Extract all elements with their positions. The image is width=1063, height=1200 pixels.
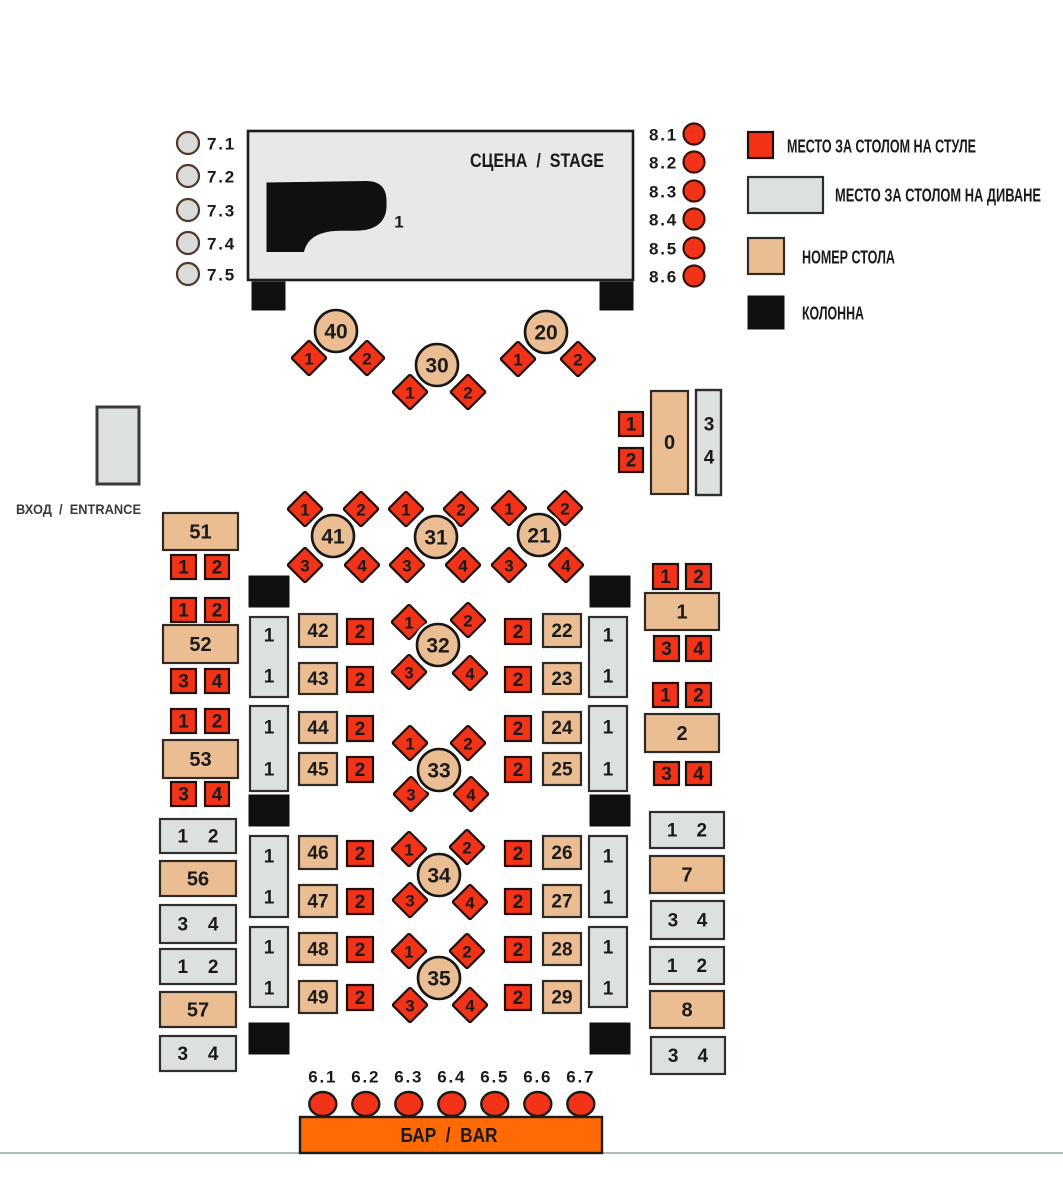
svg-text:2: 2 bbox=[208, 957, 219, 978]
svg-text:22: 22 bbox=[551, 621, 572, 642]
svg-text:1: 1 bbox=[405, 384, 414, 403]
svg-text:56: 56 bbox=[187, 869, 209, 891]
svg-text:1: 1 bbox=[603, 888, 614, 909]
svg-text:1: 1 bbox=[626, 415, 637, 436]
svg-text:1: 1 bbox=[603, 718, 614, 739]
svg-text:1: 1 bbox=[603, 847, 614, 868]
svg-text:2: 2 bbox=[513, 670, 524, 691]
svg-text:7.1: 7.1 bbox=[207, 135, 236, 154]
svg-text:3: 3 bbox=[178, 915, 189, 936]
svg-text:3: 3 bbox=[402, 557, 411, 576]
svg-text:7: 7 bbox=[681, 865, 692, 887]
svg-text:3: 3 bbox=[406, 786, 415, 805]
svg-text:8.4: 8.4 bbox=[649, 211, 678, 230]
svg-text:4: 4 bbox=[458, 557, 468, 576]
svg-text:1: 1 bbox=[264, 938, 275, 959]
svg-text:2: 2 bbox=[463, 384, 472, 403]
svg-text:1: 1 bbox=[394, 213, 403, 232]
svg-text:1: 1 bbox=[401, 501, 410, 520]
svg-text:МЕСТО ЗА СТОЛОМ НА СТУЛЕ: МЕСТО ЗА СТОЛОМ НА СТУЛЕ bbox=[787, 136, 976, 157]
svg-text:3: 3 bbox=[661, 764, 672, 785]
svg-text:3: 3 bbox=[178, 672, 189, 693]
svg-text:2: 2 bbox=[355, 670, 366, 691]
svg-text:42: 42 bbox=[307, 621, 328, 642]
svg-text:6.1: 6.1 bbox=[308, 1068, 337, 1087]
svg-text:7.2: 7.2 bbox=[207, 168, 236, 187]
svg-text:34: 34 bbox=[427, 865, 451, 888]
svg-text:48: 48 bbox=[307, 940, 328, 961]
svg-text:1: 1 bbox=[178, 601, 189, 622]
svg-text:1: 1 bbox=[264, 847, 275, 868]
svg-text:4: 4 bbox=[465, 894, 475, 913]
svg-text:45: 45 bbox=[307, 760, 329, 781]
svg-text:1: 1 bbox=[264, 888, 275, 909]
svg-text:7.4: 7.4 bbox=[207, 235, 236, 254]
svg-text:3: 3 bbox=[704, 415, 715, 436]
svg-text:31: 31 bbox=[424, 527, 448, 550]
svg-text:1: 1 bbox=[264, 760, 275, 781]
svg-text:2: 2 bbox=[212, 712, 223, 733]
svg-text:4: 4 bbox=[693, 764, 704, 785]
svg-text:29: 29 bbox=[551, 988, 572, 1009]
svg-text:2: 2 bbox=[560, 500, 569, 519]
svg-text:8: 8 bbox=[681, 1000, 692, 1022]
svg-text:2: 2 bbox=[463, 735, 472, 754]
svg-text:1: 1 bbox=[264, 667, 275, 688]
svg-text:6.3: 6.3 bbox=[394, 1068, 423, 1087]
svg-text:20: 20 bbox=[534, 322, 557, 345]
svg-text:4: 4 bbox=[465, 665, 475, 684]
svg-text:1: 1 bbox=[178, 957, 189, 978]
svg-text:3: 3 bbox=[405, 997, 414, 1016]
svg-text:4: 4 bbox=[465, 997, 475, 1016]
svg-text:6.5: 6.5 bbox=[480, 1068, 509, 1087]
svg-text:8.6: 8.6 bbox=[649, 268, 678, 287]
svg-text:3: 3 bbox=[661, 639, 672, 660]
svg-text:4: 4 bbox=[561, 557, 571, 576]
svg-text:33: 33 bbox=[427, 760, 450, 783]
svg-text:2: 2 bbox=[462, 839, 471, 858]
svg-text:21: 21 bbox=[527, 525, 551, 548]
svg-text:2: 2 bbox=[693, 567, 704, 588]
svg-text:3: 3 bbox=[504, 557, 513, 576]
svg-text:8.2: 8.2 bbox=[649, 154, 678, 173]
svg-text:СЦЕНА / STAGE: СЦЕНА / STAGE bbox=[470, 150, 604, 172]
svg-text:41: 41 bbox=[321, 526, 345, 549]
svg-text:2: 2 bbox=[355, 988, 366, 1009]
svg-text:24: 24 bbox=[551, 718, 573, 739]
svg-text:2: 2 bbox=[513, 988, 524, 1009]
svg-text:1: 1 bbox=[660, 686, 671, 707]
svg-text:35: 35 bbox=[427, 968, 451, 991]
svg-text:1: 1 bbox=[264, 718, 275, 739]
svg-text:2: 2 bbox=[513, 892, 524, 913]
svg-text:47: 47 bbox=[307, 892, 328, 913]
svg-text:52: 52 bbox=[189, 634, 211, 656]
svg-text:1: 1 bbox=[178, 558, 189, 579]
svg-text:2: 2 bbox=[573, 351, 582, 370]
svg-text:30: 30 bbox=[425, 355, 448, 378]
svg-text:57: 57 bbox=[187, 1000, 209, 1022]
svg-text:1: 1 bbox=[603, 760, 614, 781]
svg-text:1: 1 bbox=[676, 602, 687, 624]
svg-text:2: 2 bbox=[212, 601, 223, 622]
svg-text:ВХОД / ENTRANCE: ВХОД / ENTRANCE bbox=[16, 501, 141, 517]
svg-text:1: 1 bbox=[264, 626, 275, 647]
svg-text:2: 2 bbox=[513, 940, 524, 961]
svg-text:40: 40 bbox=[324, 321, 347, 344]
svg-text:2: 2 bbox=[513, 622, 524, 643]
svg-text:3: 3 bbox=[178, 785, 189, 806]
svg-text:2: 2 bbox=[355, 622, 366, 643]
svg-text:44: 44 bbox=[307, 718, 329, 739]
svg-text:23: 23 bbox=[551, 669, 572, 690]
svg-text:1: 1 bbox=[603, 938, 614, 959]
svg-text:1: 1 bbox=[404, 943, 413, 962]
svg-text:БАР / BAR: БАР / BAR bbox=[401, 1125, 498, 1147]
svg-text:2: 2 bbox=[513, 719, 524, 740]
svg-text:2: 2 bbox=[356, 501, 365, 520]
svg-text:1: 1 bbox=[304, 350, 313, 369]
svg-text:1: 1 bbox=[603, 979, 614, 1000]
svg-text:6.4: 6.4 bbox=[437, 1068, 466, 1087]
svg-text:1: 1 bbox=[300, 501, 309, 520]
svg-text:2: 2 bbox=[697, 821, 708, 842]
svg-text:4: 4 bbox=[208, 915, 219, 936]
svg-text:1: 1 bbox=[504, 500, 513, 519]
svg-text:8.3: 8.3 bbox=[649, 183, 678, 202]
svg-text:28: 28 bbox=[551, 940, 572, 961]
svg-text:49: 49 bbox=[307, 988, 328, 1009]
svg-text:0: 0 bbox=[664, 432, 675, 454]
svg-text:2: 2 bbox=[355, 760, 366, 781]
svg-text:1: 1 bbox=[404, 841, 413, 860]
svg-text:4: 4 bbox=[698, 1046, 709, 1067]
svg-text:2: 2 bbox=[676, 723, 687, 745]
svg-text:НОМЕР СТОЛА: НОМЕР СТОЛА bbox=[802, 247, 895, 268]
svg-text:2: 2 bbox=[626, 451, 637, 472]
svg-text:2: 2 bbox=[463, 612, 472, 631]
svg-text:3: 3 bbox=[300, 557, 309, 576]
svg-text:4: 4 bbox=[466, 786, 476, 805]
svg-text:46: 46 bbox=[307, 843, 328, 864]
svg-text:1: 1 bbox=[660, 567, 671, 588]
svg-text:1: 1 bbox=[603, 626, 614, 647]
svg-text:1: 1 bbox=[603, 667, 614, 688]
svg-text:3: 3 bbox=[668, 911, 679, 932]
svg-text:1: 1 bbox=[404, 614, 413, 633]
svg-text:51: 51 bbox=[189, 522, 211, 544]
svg-text:43: 43 bbox=[307, 669, 328, 690]
svg-text:1: 1 bbox=[405, 735, 414, 754]
svg-text:2: 2 bbox=[513, 760, 524, 781]
svg-text:7.5: 7.5 bbox=[207, 266, 236, 285]
svg-text:2: 2 bbox=[355, 940, 366, 961]
svg-text:3: 3 bbox=[668, 1046, 679, 1067]
svg-text:2: 2 bbox=[362, 350, 371, 369]
svg-text:2: 2 bbox=[697, 956, 708, 977]
svg-text:2: 2 bbox=[456, 501, 465, 520]
svg-text:6.7: 6.7 bbox=[566, 1068, 595, 1087]
svg-text:4: 4 bbox=[212, 785, 223, 806]
svg-text:2: 2 bbox=[513, 844, 524, 865]
svg-text:26: 26 bbox=[551, 843, 572, 864]
svg-text:2: 2 bbox=[693, 686, 704, 707]
svg-text:27: 27 bbox=[551, 892, 572, 913]
svg-text:1: 1 bbox=[264, 979, 275, 1000]
svg-text:МЕСТО ЗА СТОЛОМ НА ДИВАНЕ: МЕСТО ЗА СТОЛОМ НА ДИВАНЕ bbox=[835, 185, 1041, 206]
svg-text:КОЛОННА: КОЛОННА bbox=[802, 303, 864, 324]
svg-text:8.1: 8.1 bbox=[649, 126, 678, 145]
svg-text:3: 3 bbox=[405, 892, 414, 911]
svg-text:25: 25 bbox=[551, 760, 573, 781]
svg-text:4: 4 bbox=[357, 557, 367, 576]
svg-text:6.6: 6.6 bbox=[523, 1068, 552, 1087]
svg-text:32: 32 bbox=[426, 635, 449, 658]
svg-text:6.2: 6.2 bbox=[351, 1068, 380, 1087]
svg-text:1: 1 bbox=[513, 351, 522, 370]
svg-text:3: 3 bbox=[178, 1044, 189, 1065]
svg-text:2: 2 bbox=[208, 827, 219, 848]
svg-text:2: 2 bbox=[355, 719, 366, 740]
svg-text:4: 4 bbox=[212, 672, 223, 693]
svg-text:4: 4 bbox=[693, 639, 704, 660]
svg-text:4: 4 bbox=[697, 911, 708, 932]
svg-text:4: 4 bbox=[208, 1044, 219, 1065]
svg-text:2: 2 bbox=[212, 558, 223, 579]
svg-text:3: 3 bbox=[404, 664, 413, 683]
svg-text:4: 4 bbox=[704, 448, 715, 469]
svg-text:7.3: 7.3 bbox=[207, 202, 236, 221]
svg-text:53: 53 bbox=[189, 749, 211, 771]
svg-text:1: 1 bbox=[667, 956, 678, 977]
svg-text:1: 1 bbox=[178, 827, 189, 848]
svg-text:1: 1 bbox=[667, 821, 678, 842]
svg-text:2: 2 bbox=[355, 892, 366, 913]
svg-text:2: 2 bbox=[355, 844, 366, 865]
svg-text:1: 1 bbox=[178, 712, 189, 733]
svg-text:8.5: 8.5 bbox=[649, 240, 678, 259]
svg-text:2: 2 bbox=[462, 943, 471, 962]
